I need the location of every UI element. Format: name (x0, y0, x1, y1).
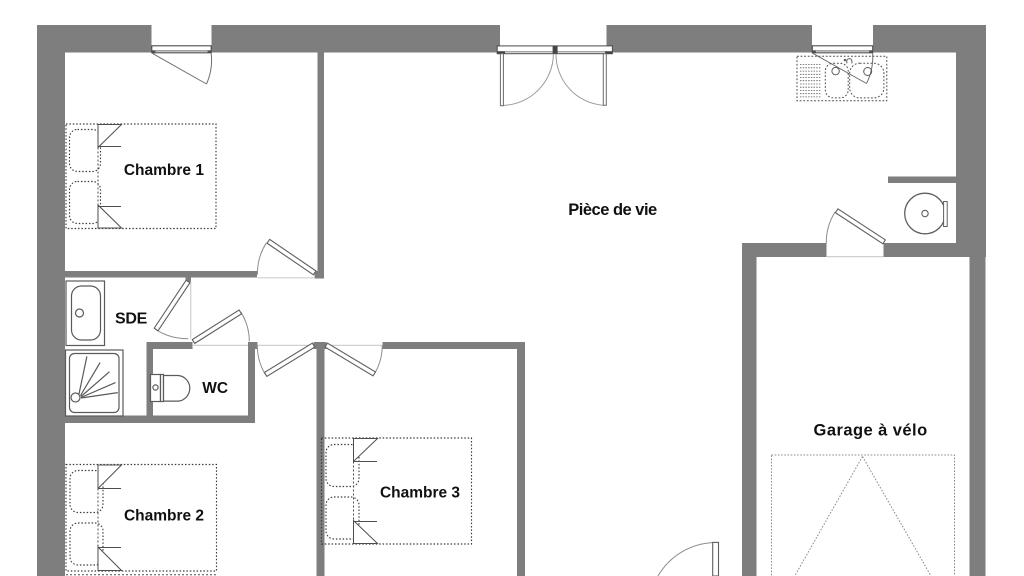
svg-text:SDE: SDE (115, 311, 148, 328)
svg-text:Chambre 2: Chambre 2 (124, 507, 204, 524)
svg-text:Pièce de vie: Pièce de vie (568, 201, 657, 219)
svg-text:Garage à vélo: Garage à vélo (814, 422, 928, 440)
svg-text:Chambre 3: Chambre 3 (380, 485, 460, 502)
svg-text:WC: WC (202, 380, 228, 397)
svg-text:Chambre 1: Chambre 1 (124, 162, 204, 179)
